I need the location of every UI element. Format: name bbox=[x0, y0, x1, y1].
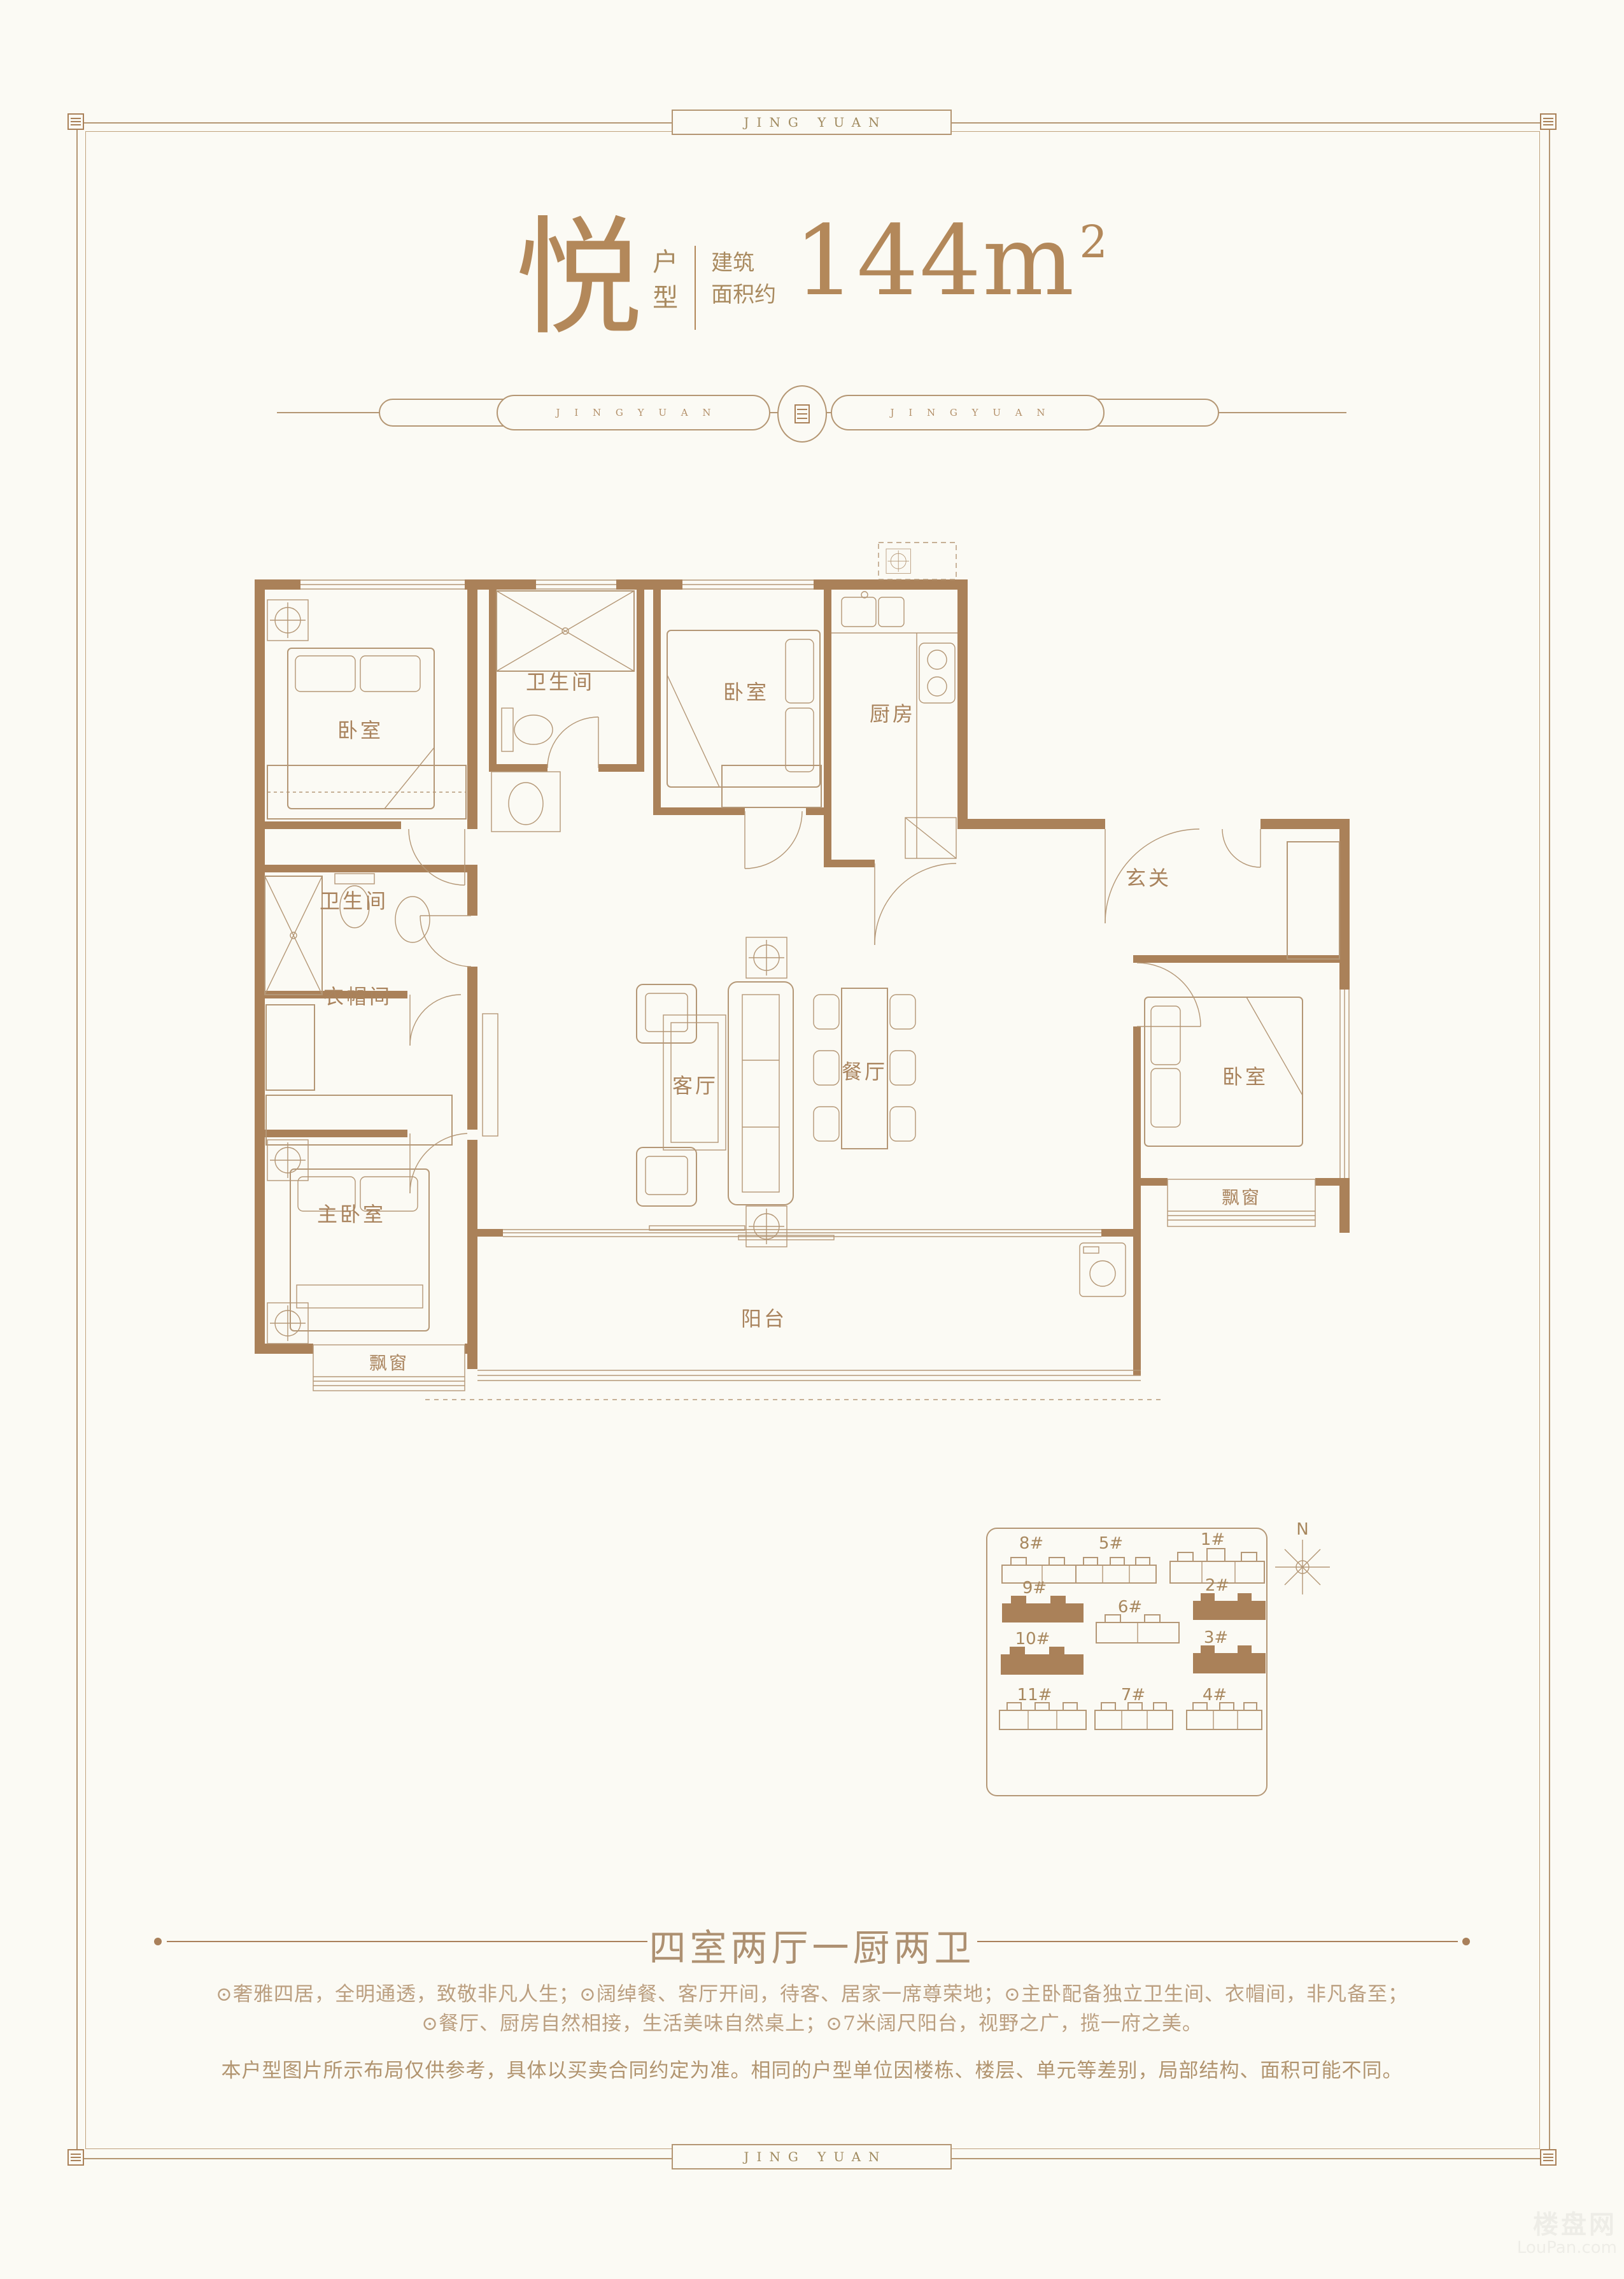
unit-title: 悦 户 型 建筑 面积约 144m2 bbox=[0, 215, 1624, 343]
building-label-10: 10# bbox=[1015, 1629, 1050, 1649]
disclaimer-text: 本户型图片所示布局仅供参考，具体以买卖合同约定为准。相同的户型单位因楼栋、楼层、… bbox=[0, 2054, 1624, 2083]
feature-line-2: ⊙餐厅、厨房自然相接，生活美味自然桌上；⊙7米阔尺阳台，视野之广，揽一府之美。 bbox=[0, 2007, 1624, 2036]
label-bath-top: 卫生间 bbox=[526, 670, 595, 694]
frame-corner-seal-br bbox=[1540, 2149, 1557, 2166]
compass-icon: N bbox=[1275, 1520, 1330, 1594]
building-label-11: 11# bbox=[1017, 1686, 1052, 1705]
frame-corner-seal-tr bbox=[1540, 113, 1557, 130]
building-label-6: 6# bbox=[1118, 1598, 1142, 1617]
walls-layer bbox=[255, 579, 1350, 1375]
area-label-line2: 面积约 bbox=[711, 284, 776, 306]
frame-top-label: JING YUAN bbox=[672, 110, 952, 135]
floorplan: 卧室 卫生间 卧室 厨房 玄关 卫生间 衣帽间 主卧室 客厅 餐厅 卧室 飘窗 … bbox=[255, 541, 1375, 1484]
building-label-9: 9# bbox=[1022, 1579, 1047, 1598]
building-label-1: 1# bbox=[1201, 1530, 1225, 1549]
label-bay-bl: 飘窗 bbox=[369, 1352, 409, 1374]
summary-dot-right bbox=[1462, 1938, 1470, 1945]
tv-cabinet bbox=[483, 1014, 498, 1136]
frame-corner-seal-bl bbox=[67, 2149, 84, 2166]
unit-type-label: 户 型 bbox=[653, 250, 678, 311]
cloakroom-wardrobe-vertical bbox=[266, 1005, 314, 1090]
label-foyer: 玄关 bbox=[1126, 866, 1171, 890]
label-bedroom-tm: 卧室 bbox=[723, 680, 769, 704]
label-cloakroom: 衣帽间 bbox=[323, 984, 392, 1009]
unit-name: 悦 bbox=[515, 215, 642, 343]
bed-top-middle bbox=[667, 630, 820, 787]
label-bedroom-r: 卧室 bbox=[1222, 1065, 1268, 1089]
divider-capsule-right: J I N G Y U A N bbox=[831, 395, 1105, 430]
building-label-3: 3# bbox=[1204, 1628, 1228, 1647]
title-divider-bar bbox=[695, 246, 696, 330]
watermark: 楼盘网 LouPan.com bbox=[1439, 2211, 1617, 2257]
watermark-en: LouPan.com bbox=[1439, 2239, 1617, 2257]
area-value: 144m2 bbox=[794, 215, 1109, 307]
label-kitchen: 厨房 bbox=[870, 702, 915, 726]
frame-corner-seal-tl bbox=[67, 113, 84, 130]
doors-layer bbox=[409, 717, 1260, 1193]
label-living: 客厅 bbox=[672, 1074, 718, 1098]
area-label-line1: 建筑 bbox=[711, 252, 776, 274]
bath-top bbox=[491, 591, 634, 832]
building-label-7: 7# bbox=[1121, 1686, 1145, 1705]
frame-bottom-label: JING YUAN bbox=[672, 2144, 952, 2169]
label-bay-r: 飘窗 bbox=[1222, 1187, 1261, 1208]
building-label-5: 5# bbox=[1099, 1534, 1123, 1553]
label-balcony: 阳台 bbox=[741, 1307, 787, 1331]
furniture-layer bbox=[265, 549, 1339, 1344]
summary-title: 四室两厅一厨两卫 bbox=[0, 1918, 1624, 1971]
label-dining: 餐厅 bbox=[842, 1060, 887, 1084]
label-bath-mid: 卫生间 bbox=[320, 889, 388, 913]
balcony-washer bbox=[1080, 1243, 1126, 1296]
summary-line-right bbox=[977, 1941, 1458, 1942]
wardrobe-top-left bbox=[267, 765, 466, 819]
unit-type-char-1: 户 bbox=[653, 250, 678, 275]
ornamental-divider: J I N G Y U A N J I N G Y U A N bbox=[271, 382, 1353, 446]
divider-center-seal bbox=[777, 385, 827, 443]
feature-line-1: ⊙奢雅四居，全明通透，致敬非凡人生；⊙阔绰餐、客厅开间，待客、居家一席尊荣地；⊙… bbox=[0, 1978, 1624, 2006]
watermark-cn: 楼盘网 bbox=[1439, 2211, 1617, 2239]
divider-capsule-left: J I N G Y U A N bbox=[497, 395, 770, 430]
label-master-bedroom: 主卧室 bbox=[317, 1202, 386, 1226]
cloakroom-wardrobe-horizontal bbox=[266, 1095, 452, 1145]
bed-master bbox=[290, 1169, 429, 1331]
siteplan: N 8# 5# 1# bbox=[974, 1516, 1356, 1821]
label-bedroom-tl: 卧室 bbox=[337, 718, 383, 742]
area-label: 建筑 面积约 bbox=[711, 252, 776, 306]
building-label-2: 2# bbox=[1205, 1576, 1229, 1595]
unit-type-char-2: 型 bbox=[653, 285, 678, 311]
area-exponent: 2 bbox=[1079, 216, 1109, 268]
building-label-4: 4# bbox=[1203, 1686, 1227, 1705]
building-label-8: 8# bbox=[1019, 1534, 1043, 1553]
foyer-closet bbox=[1287, 842, 1339, 959]
compass-north-label: N bbox=[1296, 1520, 1308, 1539]
